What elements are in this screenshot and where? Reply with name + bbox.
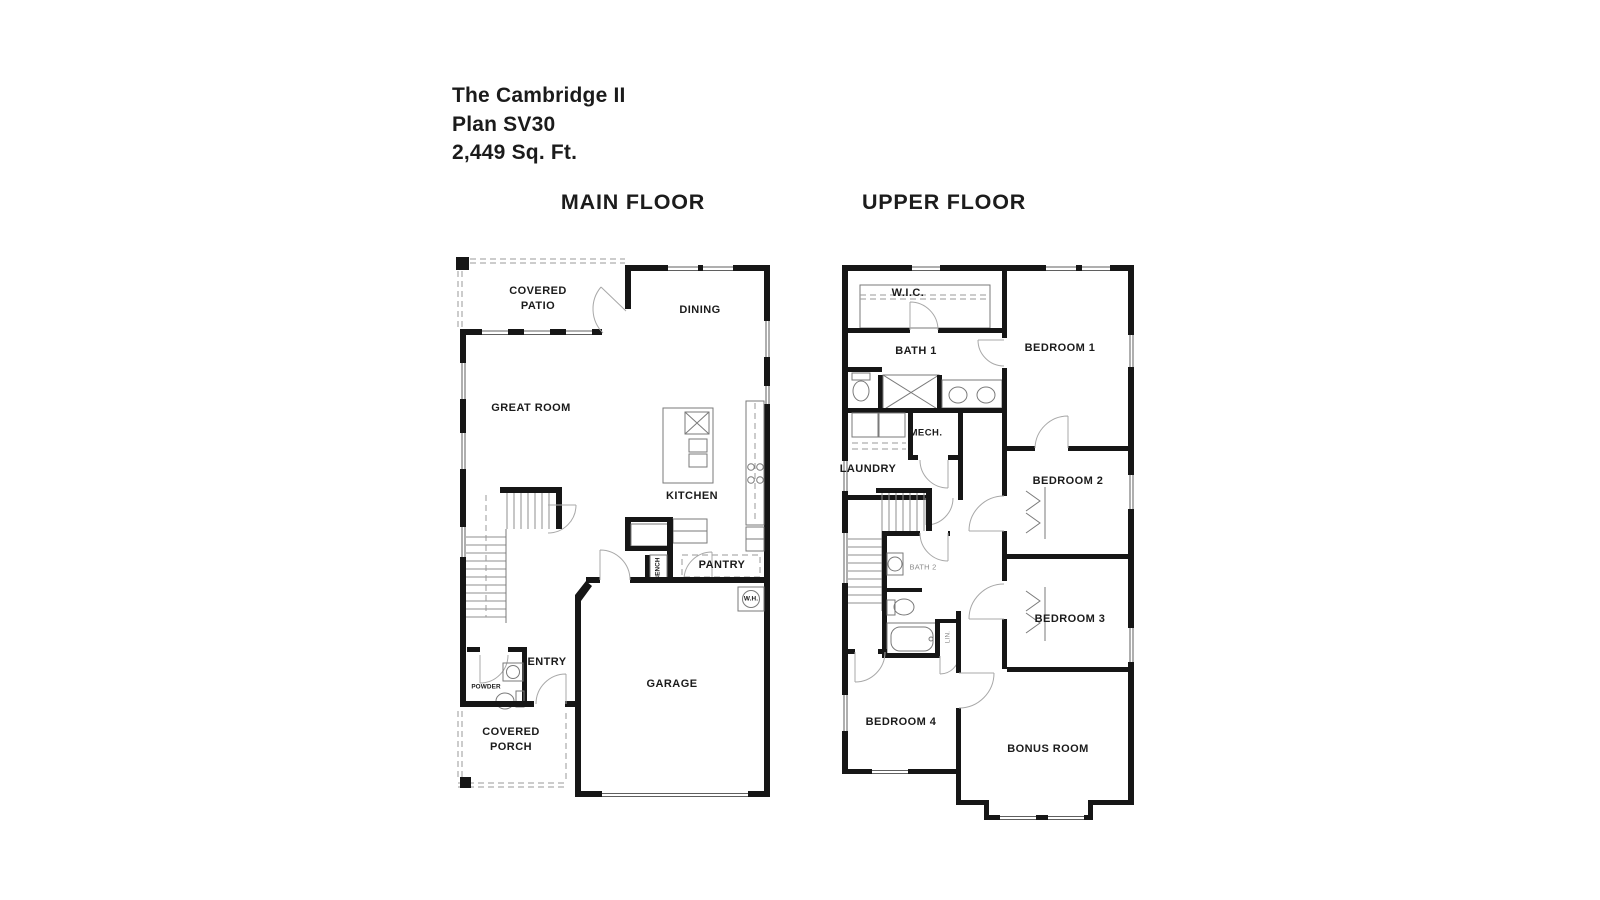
room-label-powder: POWDER <box>471 684 500 691</box>
plan-number: Plan SV30 <box>452 111 626 140</box>
room-label-bath2: BATH 2 <box>910 563 937 572</box>
room-label-bonus-room: BONUS ROOM <box>1007 743 1089 755</box>
room-label-bedroom3: BEDROOM 3 <box>1035 613 1106 625</box>
room-label-kitchen: KITCHEN <box>666 490 718 502</box>
main-floor-plan: COVERED PATIO DINING GREAT ROOM KITCHEN … <box>450 243 770 803</box>
room-label-bedroom2: BEDROOM 2 <box>1033 475 1104 487</box>
room-label-covered-patio-1: COVERED <box>509 285 567 297</box>
room-label-bath1: BATH 1 <box>895 345 937 357</box>
room-label-bedroom4: BEDROOM 4 <box>866 716 937 728</box>
room-label-covered-porch-2: PORCH <box>490 741 532 753</box>
room-label-entry: ENTRY <box>527 656 566 668</box>
upper-floor-drawing <box>820 243 1140 833</box>
patio-door <box>593 287 626 333</box>
room-label-pantry: PANTRY <box>699 559 746 571</box>
upper-floor-plan: W.I.C. BATH 1 BEDROOM 1 MECH. LAUNDRY BE… <box>820 243 1140 833</box>
room-label-mech: MECH. <box>910 428 943 439</box>
room-label-wic: W.I.C. <box>892 287 925 299</box>
room-label-garage: GARAGE <box>647 678 698 690</box>
wic-closet <box>848 285 1002 333</box>
room-label-covered-porch-1: COVERED <box>482 726 540 738</box>
plan-title-block: The Cambridge II Plan SV30 2,449 Sq. Ft. <box>452 82 626 168</box>
room-label-bench: BENCH <box>655 557 662 580</box>
room-label-bedroom1: BEDROOM 1 <box>1025 342 1096 354</box>
upper-floor-heading: UPPER FLOOR <box>862 190 1026 215</box>
bath2-fixtures <box>882 531 961 674</box>
room-label-water-heater: W.H. <box>744 596 758 603</box>
room-label-dining: DINING <box>679 304 720 316</box>
floorplan-sheet: The Cambridge II Plan SV30 2,449 Sq. Ft.… <box>0 0 1600 900</box>
upper-stairs <box>848 488 932 611</box>
plan-name: The Cambridge II <box>452 82 626 111</box>
main-floor-heading: MAIN FLOOR <box>561 190 705 215</box>
bath1-fixtures <box>848 367 1007 413</box>
main-stairs <box>466 487 576 623</box>
room-label-laundry: LAUNDRY <box>840 463 897 475</box>
room-label-linen: LIN. <box>945 631 952 643</box>
main-floor-drawing <box>450 243 770 803</box>
room-label-great-room: GREAT ROOM <box>491 402 570 414</box>
plan-area: 2,449 Sq. Ft. <box>452 139 626 168</box>
room-label-covered-patio-2: PATIO <box>521 300 555 312</box>
